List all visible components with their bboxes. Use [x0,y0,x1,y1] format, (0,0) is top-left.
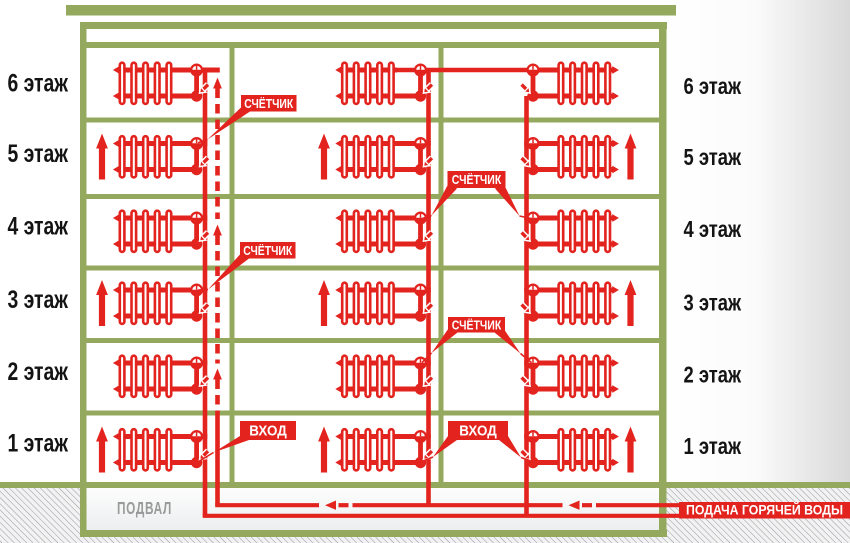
svg-text:3 этаж: 3 этаж [8,286,69,314]
svg-text:ВХОД: ВХОД [459,424,497,440]
svg-text:СЧЁТЧИК: СЧЁТЧИК [452,172,502,187]
svg-text:ПОДАЧА ГОРЯЧЕЙ ВОДЫ: ПОДАЧА ГОРЯЧЕЙ ВОДЫ [686,503,843,518]
svg-text:6 этаж: 6 этаж [8,69,69,97]
svg-text:2 этаж: 2 этаж [8,358,69,386]
svg-text:ПОДВАЛ: ПОДВАЛ [117,498,172,518]
svg-text:СЧЁТЧИК: СЧЁТЧИК [244,96,293,111]
svg-text:ВХОД: ВХОД [249,424,287,440]
svg-text:1 этаж: 1 этаж [684,433,742,459]
svg-text:2 этаж: 2 этаж [684,362,742,388]
svg-text:5 этаж: 5 этаж [684,144,742,170]
svg-text:3 этаж: 3 этаж [684,289,742,315]
svg-text:4 этаж: 4 этаж [8,213,69,241]
svg-text:СЧЁТЧИК: СЧЁТЧИК [452,317,502,332]
svg-text:1 этаж: 1 этаж [8,429,69,457]
svg-text:СЧЁТЧИК: СЧЁТЧИК [243,243,292,258]
svg-text:6 этаж: 6 этаж [684,73,742,99]
svg-text:5 этаж: 5 этаж [8,140,69,168]
svg-text:4 этаж: 4 этаж [684,216,742,242]
